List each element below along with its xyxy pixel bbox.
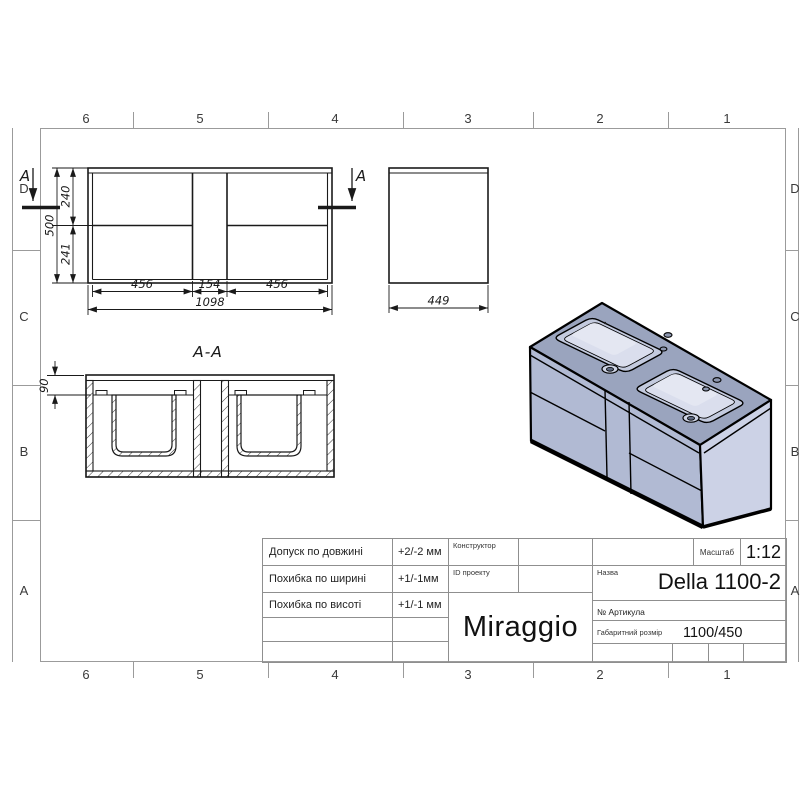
tolerance-label-cell: Допуск по довжині <box>263 539 393 566</box>
section-title: A-A <box>192 343 223 361</box>
faucet-hole <box>660 347 667 351</box>
article-cell: № Артикула <box>593 601 787 621</box>
isometric-view <box>530 303 771 527</box>
scale-label-cell: Масштаб <box>694 539 741 566</box>
product-name-cell: Назва Della 1100-2 <box>593 566 787 601</box>
dim-width-middle: 154 <box>199 277 221 291</box>
tolerance-value-cell: +1/-1 мм <box>393 593 449 618</box>
product-name: Della 1100-2 <box>658 569 781 595</box>
section-view <box>47 361 334 477</box>
faucet-hole <box>713 378 721 383</box>
tolerance-value: +2/-2 мм <box>393 546 442 558</box>
empty-cell <box>263 642 393 663</box>
side-view <box>389 168 488 313</box>
tolerance-value-cell: +1/-1мм <box>393 566 449 593</box>
section-marker-letter: A <box>19 167 30 185</box>
project-id-label: ID проекту <box>449 566 518 577</box>
tolerance-value-cell: +2/-2 мм <box>393 539 449 566</box>
overall-size-cell: Габаритний розмір 1100/450 <box>593 621 787 644</box>
drawing-sheet: 6 5 4 3 2 1 6 5 4 3 2 1 D C B A D C B A <box>0 0 800 800</box>
empty-cell <box>593 539 694 566</box>
tolerance-label: Допуск по довжині <box>263 546 363 558</box>
faucet-hole <box>703 387 710 391</box>
drain-hole-inner <box>687 416 694 420</box>
dim-width-right: 456 <box>266 277 288 291</box>
empty-cell <box>673 644 709 663</box>
faucet-hole <box>664 333 672 338</box>
title-block: Допуск по довжині +2/-2 мм Похибка по ши… <box>262 538 787 663</box>
empty-cell <box>393 642 449 663</box>
tolerance-label: Похибка по висоті <box>263 599 361 611</box>
dim-height-bottom: 241 <box>59 243 73 265</box>
dim-basin-depth: 90 <box>37 378 51 393</box>
name-label: Назва <box>597 568 618 577</box>
scale-value-cell: 1:12 <box>741 539 787 566</box>
tolerance-label: Похибка по ширині <box>263 573 366 585</box>
section-marker-letter: A <box>355 167 366 185</box>
empty-cell <box>263 618 393 642</box>
drain-hole-inner <box>606 367 613 371</box>
project-id-label-cell: ID проекту <box>449 566 519 593</box>
tolerance-label-cell: Похибка по ширині <box>263 566 393 593</box>
brand-logo: Miraggio <box>449 593 593 663</box>
dim-height-total: 500 <box>43 215 57 237</box>
fixing-dot <box>604 322 606 324</box>
empty-cell <box>709 644 744 663</box>
scale-label: Масштаб <box>700 548 734 557</box>
project-id-value-cell <box>519 566 593 593</box>
designer-label: Конструктор <box>449 539 518 550</box>
drawing-linework: 456 154 456 1098 240 241 500 A A 449 <box>0 0 800 800</box>
dim-height-top: 240 <box>59 186 73 208</box>
tolerance-value: +1/-1мм <box>393 573 439 585</box>
dim-width-left: 456 <box>131 277 153 291</box>
empty-cell <box>393 618 449 642</box>
tolerance-label-cell: Похибка по висоті <box>263 593 393 618</box>
empty-cell <box>593 644 673 663</box>
tolerance-value: +1/-1 мм <box>393 599 442 611</box>
dim-width-total: 1098 <box>195 295 224 309</box>
empty-cell <box>744 644 787 663</box>
designer-label-cell: Конструктор <box>449 539 519 566</box>
dim-depth: 449 <box>428 294 450 308</box>
overall-size-value: 1100/450 <box>683 625 742 641</box>
designer-value-cell <box>519 539 593 566</box>
article-label: № Артикула <box>597 607 645 617</box>
overall-size-label: Габаритний розмір <box>597 628 662 637</box>
